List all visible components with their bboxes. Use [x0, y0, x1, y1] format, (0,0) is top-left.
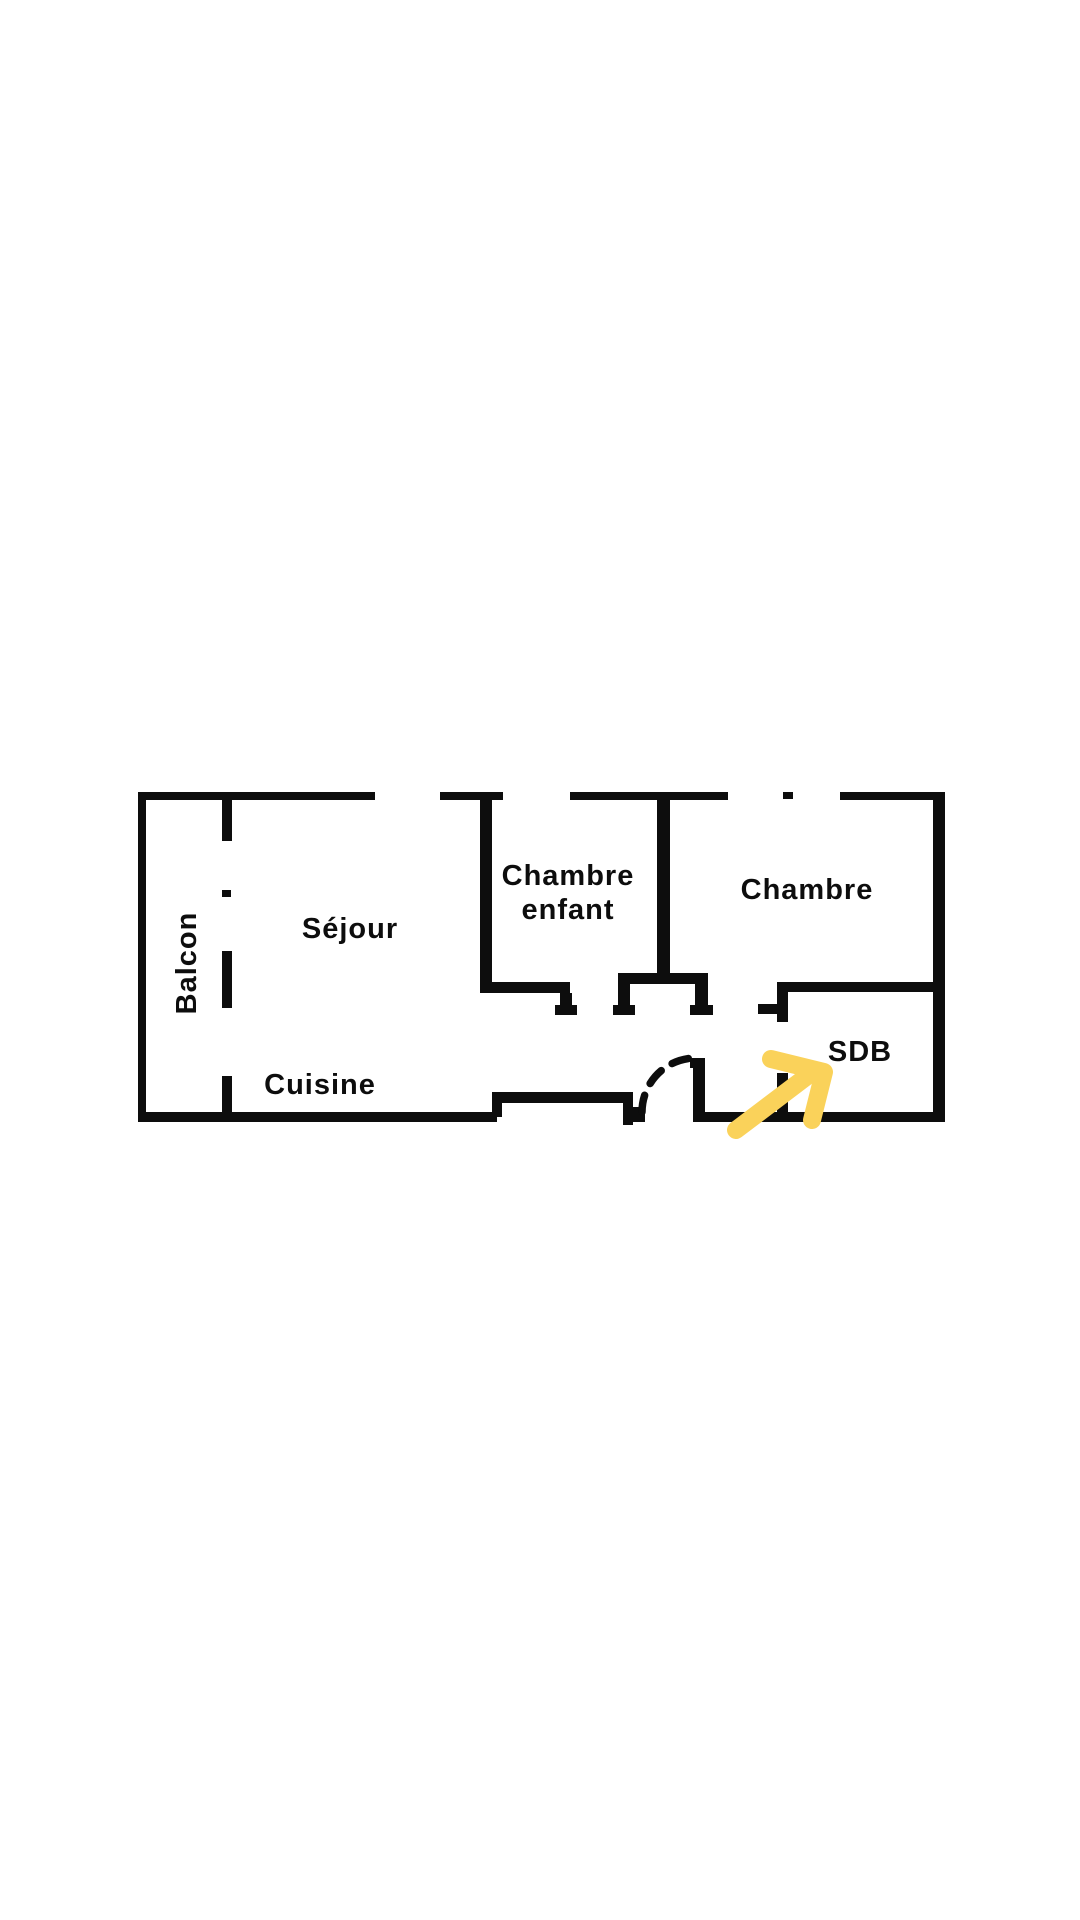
wall-divider-bar	[618, 973, 708, 984]
wall-divider-foot-left	[618, 984, 630, 1007]
room-label-balcon: Balcon	[171, 912, 203, 1015]
wall-bump-top	[492, 1092, 633, 1103]
wall-chambre-enfant-foot-cap	[555, 1005, 577, 1015]
wall-chambre-enfant-bottom	[480, 982, 570, 993]
wall-chambre-enfant-left	[480, 800, 492, 993]
wall-divider-foot-right-cap	[690, 1005, 713, 1015]
wall-top-c	[570, 792, 728, 800]
wall-balcon-divider-3	[222, 1076, 232, 1116]
wall-top-d	[840, 792, 945, 800]
floor-plan-svg: Balcon Séjour Chambre enfant Chambre Cui…	[0, 0, 1080, 1920]
wall-top-a	[138, 792, 375, 800]
wall-bump-right-vertical	[623, 1092, 633, 1125]
sdb-arrow-shaft	[736, 1077, 806, 1130]
floor-plan-page: Balcon Séjour Chambre enfant Chambre Cui…	[0, 0, 1080, 1920]
wall-top-b	[440, 792, 503, 800]
wall-sdb-left-upper	[777, 982, 788, 1022]
wall-balcon-divider-1	[222, 800, 232, 841]
wall-left	[138, 792, 146, 1122]
room-label-sdb: SDB	[828, 1036, 892, 1068]
wall-top-window-stub	[783, 792, 793, 799]
wall-chambre-enfant-foot	[560, 993, 572, 1007]
wall-divider-foot-left-cap	[613, 1005, 635, 1015]
entrance-door-arc	[642, 1058, 696, 1112]
wall-sdb-jamb-stub	[758, 1004, 778, 1014]
wall-sdb-top	[778, 982, 945, 992]
wall-bottom-left	[138, 1112, 497, 1122]
room-label-sejour: Séjour	[302, 913, 398, 945]
wall-balcon-divider-2	[222, 951, 232, 1008]
room-label-cuisine: Cuisine	[264, 1069, 376, 1101]
wall-divider-foot-right	[695, 984, 708, 1007]
wall-balcon-divider-dash	[222, 890, 231, 897]
wall-entry-jamb	[693, 1058, 705, 1122]
room-label-chambre: Chambre	[741, 874, 874, 906]
room-label-chambre-enfant-line2: enfant	[522, 894, 615, 926]
wall-bedroom-divider	[657, 800, 670, 973]
wall-right	[933, 792, 945, 1122]
room-label-chambre-enfant-line1: Chambre	[502, 860, 635, 892]
